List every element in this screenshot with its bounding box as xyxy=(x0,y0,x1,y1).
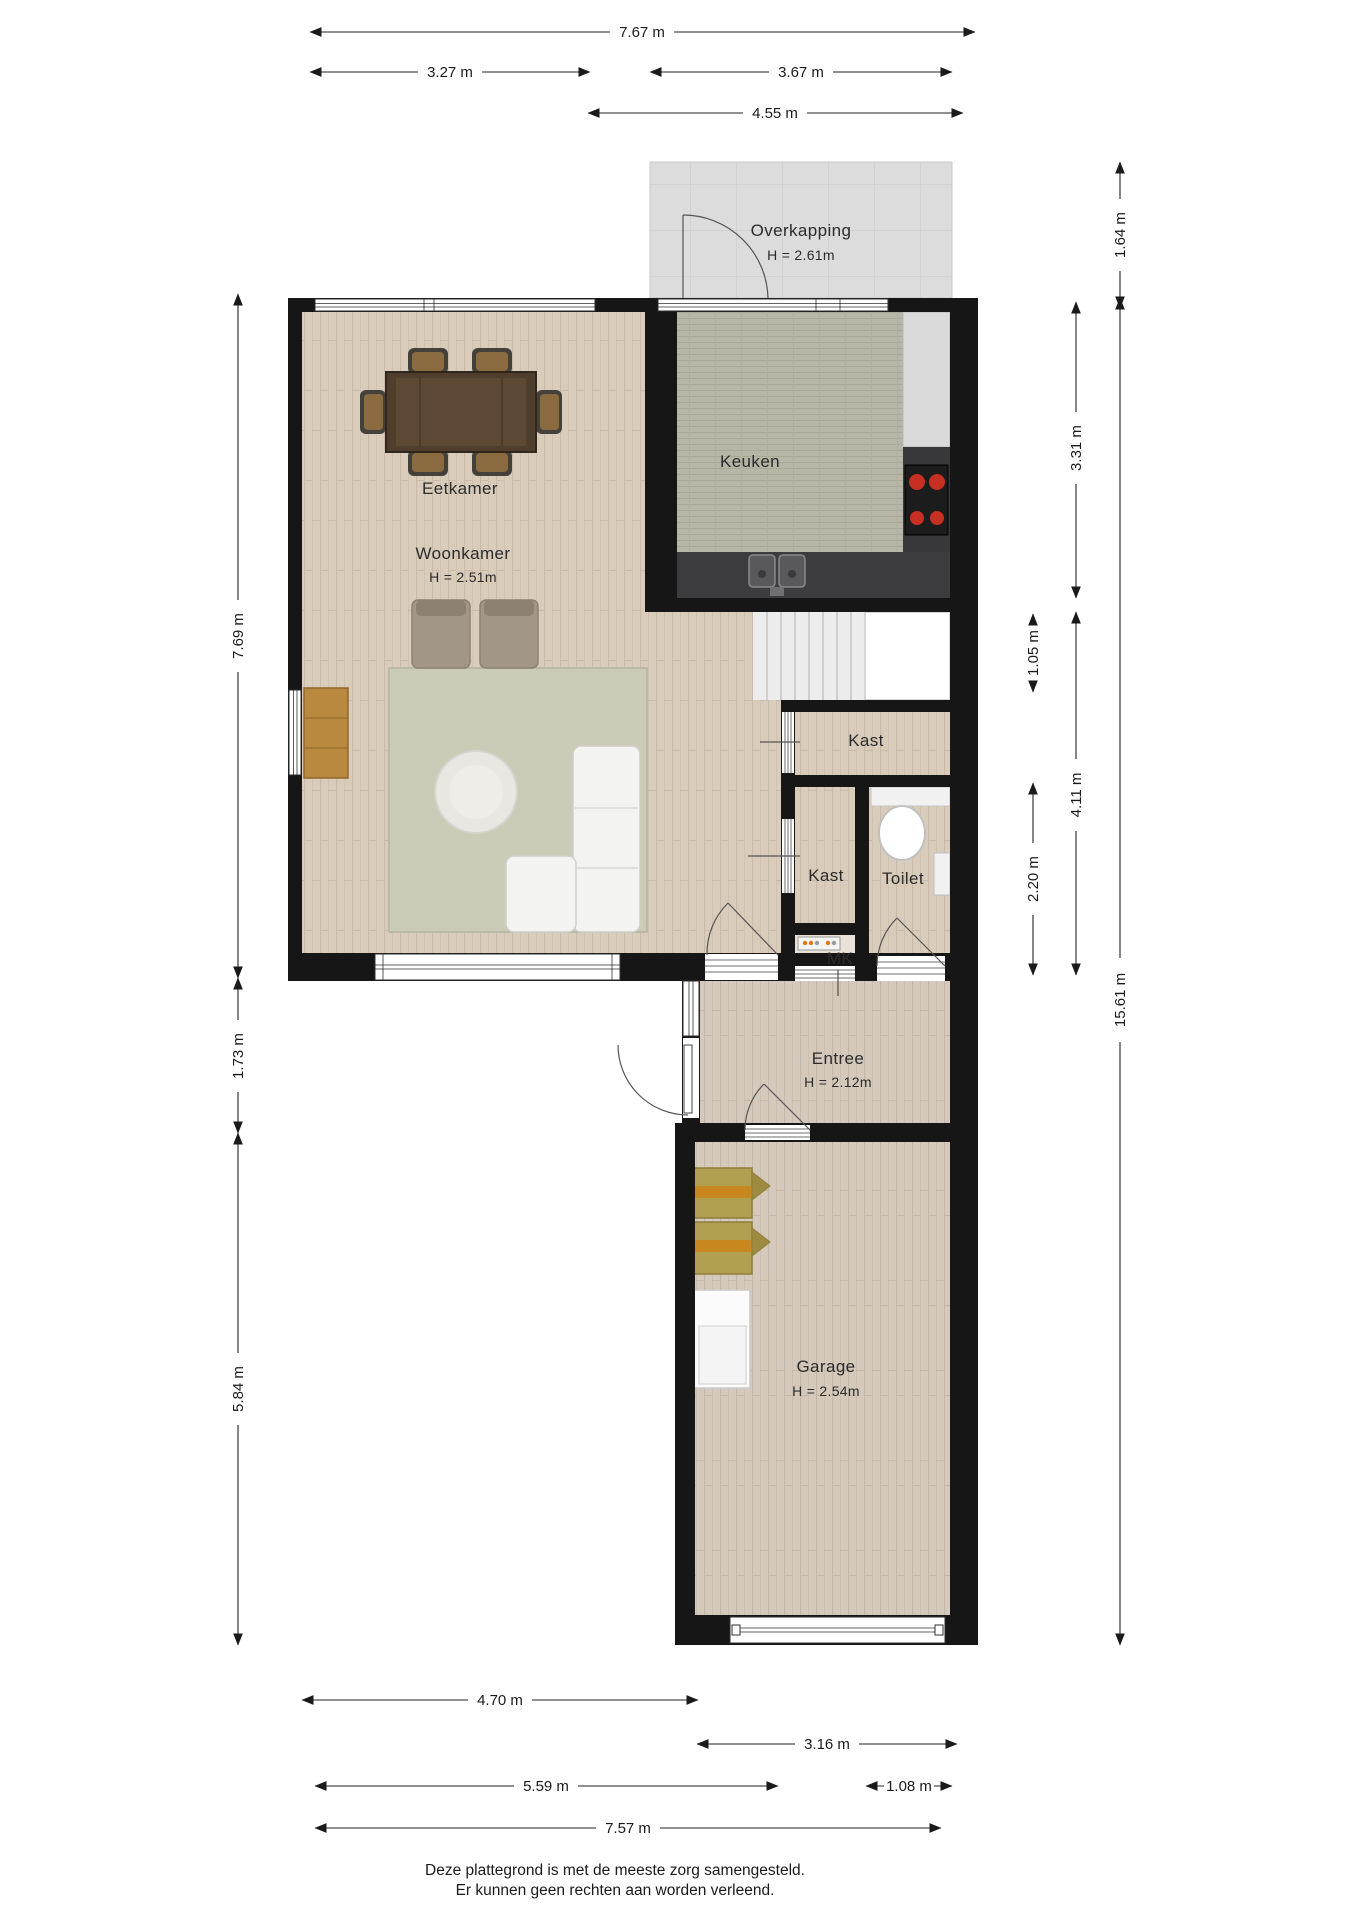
dim-right-trap: 1.05 m xyxy=(1025,614,1042,692)
stairs xyxy=(753,612,950,700)
svg-text:1.73 m: 1.73 m xyxy=(230,1033,247,1079)
wall-stairs-south xyxy=(783,700,952,712)
sliding-door-overkapping xyxy=(658,299,888,311)
svg-text:1.08 m: 1.08 m xyxy=(886,1778,932,1795)
svg-text:3.67 m: 3.67 m xyxy=(778,64,824,81)
toilet-sink xyxy=(934,853,950,895)
footer-line2: Er kunnen geen rechten aan worden verlee… xyxy=(456,1882,775,1899)
door-toilet-threshold xyxy=(877,956,945,981)
keuken-label: Keuken xyxy=(720,452,780,471)
wall-west xyxy=(288,312,302,978)
door-garage-threshold xyxy=(745,1125,810,1140)
dim-top-overkapping: 4.55 m xyxy=(588,104,963,122)
front-door xyxy=(618,1038,699,1118)
wall-mk-north xyxy=(781,923,869,935)
wall-garage-west xyxy=(675,1142,695,1645)
svg-text:3.16 m: 3.16 m xyxy=(804,1736,850,1753)
wall-kast-divider xyxy=(781,775,952,787)
stairs-landing xyxy=(865,612,950,700)
dim-right-overkapping: 1.64 m xyxy=(1111,162,1130,308)
dim-top-left: 3.27 m xyxy=(310,63,590,81)
svg-text:4.70 m: 4.70 m xyxy=(477,1692,523,1709)
kast-boven-label: Kast xyxy=(848,731,884,750)
footer-line1: Deze plattegrond is met de meeste zorg s… xyxy=(425,1862,805,1879)
garage-label: Garage xyxy=(796,1357,855,1376)
svg-text:7.57 m: 7.57 m xyxy=(605,1820,651,1837)
dim-bottom-voor: 5.59 m xyxy=(315,1777,778,1795)
svg-text:7.67 m: 7.67 m xyxy=(619,24,665,41)
window-eetkamer xyxy=(315,299,595,311)
dim-right-total: 15.61 m xyxy=(1111,298,1130,1645)
svg-text:3.27 m: 3.27 m xyxy=(427,64,473,81)
dim-bottom-tuin: 4.70 m xyxy=(302,1691,698,1709)
woonkamer-height: H = 2.51m xyxy=(429,569,497,585)
floorplan-canvas: Overkapping H = 2.61m Keuken Eetkamer Wo… xyxy=(0,0,1358,1920)
dim-bottom-pad: 1.08 m xyxy=(866,1778,952,1795)
svg-text:5.84 m: 5.84 m xyxy=(230,1366,247,1412)
entree-height: H = 2.12m xyxy=(804,1074,872,1090)
stove xyxy=(905,465,948,535)
dim-top-total: 7.67 m xyxy=(310,23,975,41)
door-mk-threshold xyxy=(795,966,855,981)
toilet-label: Toilet xyxy=(882,869,924,888)
window-entree xyxy=(683,981,699,1036)
wall-entree-garage xyxy=(675,1123,952,1142)
wall-toilet-west xyxy=(855,787,869,967)
dim-right-keuken: 3.31 m xyxy=(1067,302,1086,598)
mk-label: MK xyxy=(827,949,854,968)
wall-kitchen-south xyxy=(645,598,952,612)
svg-text:4.55 m: 4.55 m xyxy=(752,105,798,122)
armchair-left xyxy=(412,600,470,668)
eetkamer-label: Eetkamer xyxy=(422,479,498,498)
dim-left-tussen: 1.73 m xyxy=(229,978,248,1133)
svg-text:1.64 m: 1.64 m xyxy=(1112,212,1129,258)
overkapping-label: Overkapping xyxy=(751,221,852,240)
svg-text:3.31 m: 3.31 m xyxy=(1068,425,1085,471)
dim-right-hal: 4.11 m xyxy=(1067,612,1086,975)
armchair-right xyxy=(480,600,538,668)
svg-text:7.69 m: 7.69 m xyxy=(230,613,247,659)
entree-label: Entree xyxy=(812,1049,865,1068)
garage-door xyxy=(730,1617,945,1643)
dim-bottom-garage: 3.16 m xyxy=(697,1735,957,1753)
overkapping-height: H = 2.61m xyxy=(767,247,835,263)
window-woonkamer-south xyxy=(375,954,620,980)
dim-left-woonkamer: 7.69 m xyxy=(229,294,248,978)
freezer xyxy=(694,1290,750,1388)
kitchen-counter xyxy=(677,552,952,598)
dim-left-garage: 5.84 m xyxy=(229,1133,248,1645)
kast-onder-floor xyxy=(794,787,855,923)
door-woonkamer-threshold xyxy=(705,954,778,980)
floorplan-page: Overkapping H = 2.61m Keuken Eetkamer Wo… xyxy=(0,0,1358,1920)
garage-height: H = 2.54m xyxy=(792,1383,860,1399)
dim-bottom-total: 7.57 m xyxy=(315,1819,941,1837)
svg-text:4.11 m: 4.11 m xyxy=(1068,773,1085,818)
svg-text:2.20 m: 2.20 m xyxy=(1025,856,1042,902)
coffee-table-top xyxy=(449,765,503,819)
footer: Deze plattegrond is met de meeste zorg s… xyxy=(425,1862,805,1899)
svg-text:5.59 m: 5.59 m xyxy=(523,1778,569,1795)
svg-text:15.61 m: 15.61 m xyxy=(1112,973,1129,1027)
dim-right-toilet: 2.20 m xyxy=(1024,783,1043,975)
wall-kitchen-divider xyxy=(645,298,677,612)
kitchen-cabinet xyxy=(903,312,950,447)
dresser xyxy=(304,688,348,778)
dim-top-right: 3.67 m xyxy=(650,63,952,81)
woonkamer-label: Woonkamer xyxy=(416,544,511,563)
window-west xyxy=(289,690,301,775)
svg-text:1.05 m: 1.05 m xyxy=(1025,630,1042,676)
kast-onder-label: Kast xyxy=(808,866,844,885)
